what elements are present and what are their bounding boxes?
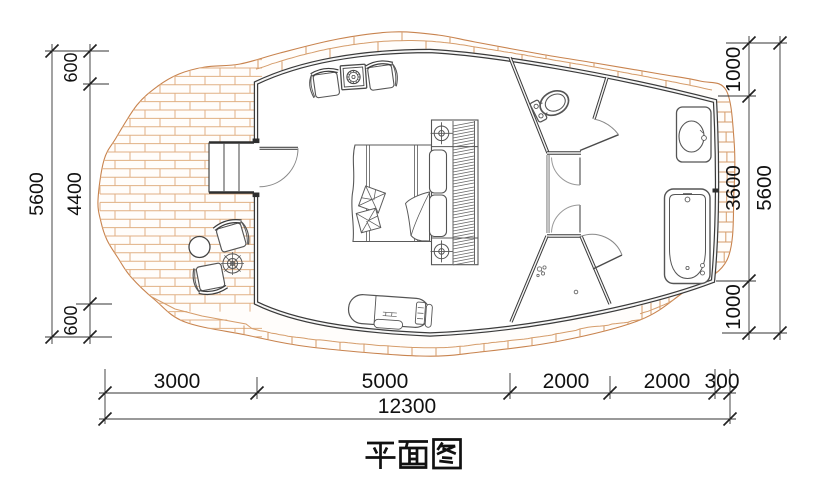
- svg-text:3600: 3600: [722, 165, 745, 211]
- svg-text:600: 600: [61, 305, 81, 335]
- svg-text:5000: 5000: [362, 370, 409, 393]
- svg-text:600: 600: [61, 52, 81, 82]
- svg-text:5600: 5600: [753, 165, 776, 211]
- svg-text:1000: 1000: [722, 284, 745, 330]
- svg-text:4400: 4400: [64, 172, 86, 216]
- svg-text:2000: 2000: [543, 370, 590, 393]
- svg-text:3000: 3000: [154, 370, 201, 393]
- svg-text:5600: 5600: [26, 172, 48, 216]
- svg-text:1000: 1000: [722, 47, 745, 93]
- svg-text:2000: 2000: [644, 370, 691, 393]
- svg-text:12300: 12300: [378, 395, 436, 418]
- svg-text:300: 300: [704, 370, 739, 393]
